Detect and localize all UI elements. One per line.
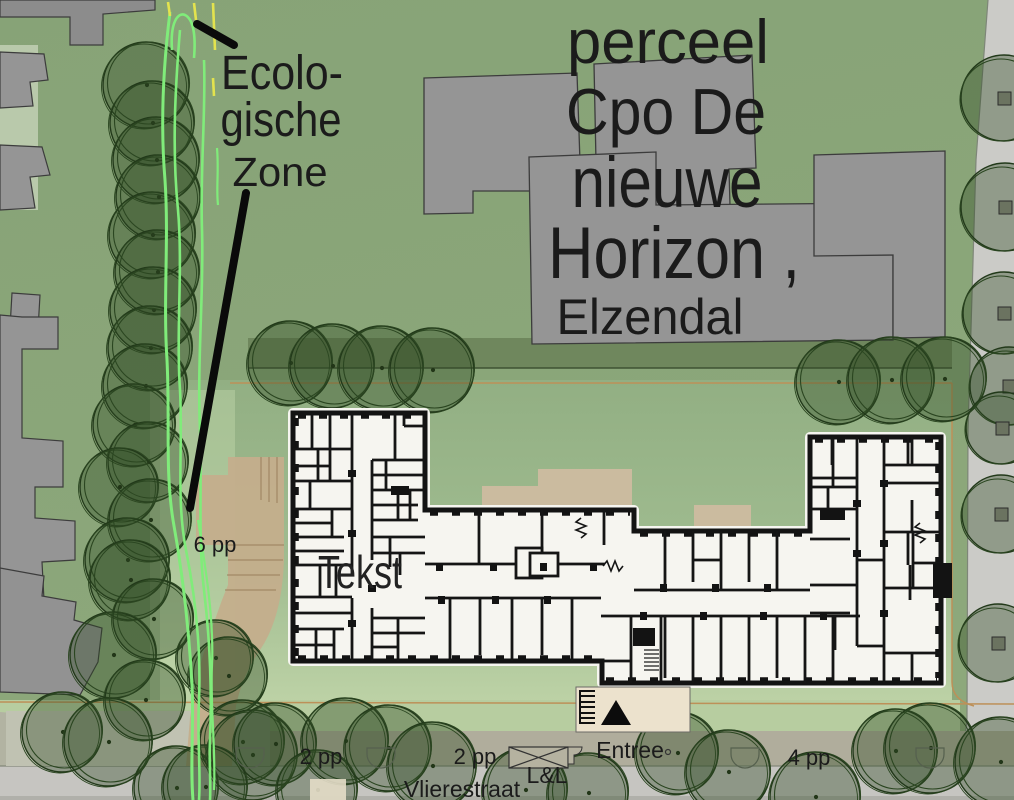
svg-text:L&L: L&L <box>527 762 568 788</box>
svg-text:Horizon ,: Horizon , <box>548 213 800 294</box>
svg-text:Elzendal: Elzendal <box>557 289 744 345</box>
svg-text:Cpo De: Cpo De <box>566 75 766 148</box>
svg-text:gische: gische <box>221 94 342 147</box>
svg-text:2 pp: 2 pp <box>300 744 343 769</box>
svg-text:Ecolo-: Ecolo- <box>221 47 343 100</box>
svg-text:2 pp: 2 pp <box>454 744 497 769</box>
svg-text:4 pp: 4 pp <box>788 745 831 770</box>
svg-text:Tekst: Tekst <box>318 546 402 598</box>
svg-text:Entree: Entree <box>596 737 664 763</box>
svg-text:nieuwe: nieuwe <box>572 144 763 223</box>
svg-text:Zone: Zone <box>233 149 328 195</box>
svg-text:6 pp: 6 pp <box>194 532 237 557</box>
svg-text:perceel: perceel <box>567 8 769 77</box>
svg-text:Vlierestraat: Vlierestraat <box>404 776 521 800</box>
